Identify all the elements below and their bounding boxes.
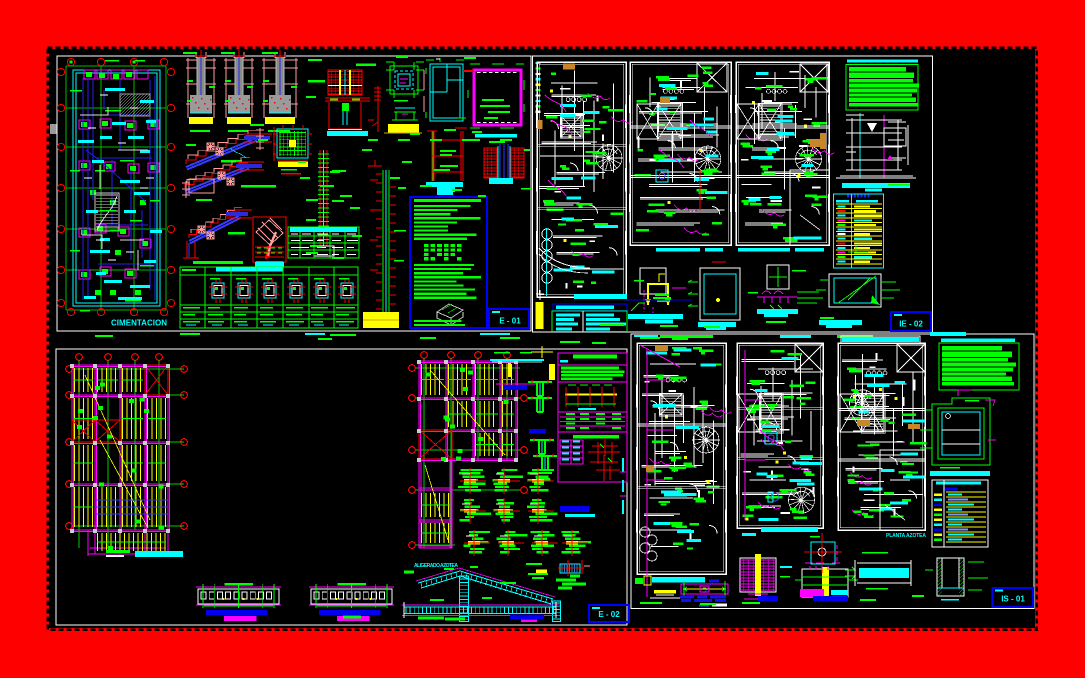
svg-text:IS - 01: IS - 01	[1001, 595, 1025, 604]
svg-text:E - 01: E - 01	[499, 317, 521, 326]
svg-text:PLANTA AZOTEA: PLANTA AZOTEA	[886, 533, 926, 539]
svg-text:E - 02: E - 02	[598, 610, 620, 619]
svg-text:IE - 02: IE - 02	[899, 320, 923, 329]
svg-text:CIMENTACION: CIMENTACION	[111, 319, 167, 328]
